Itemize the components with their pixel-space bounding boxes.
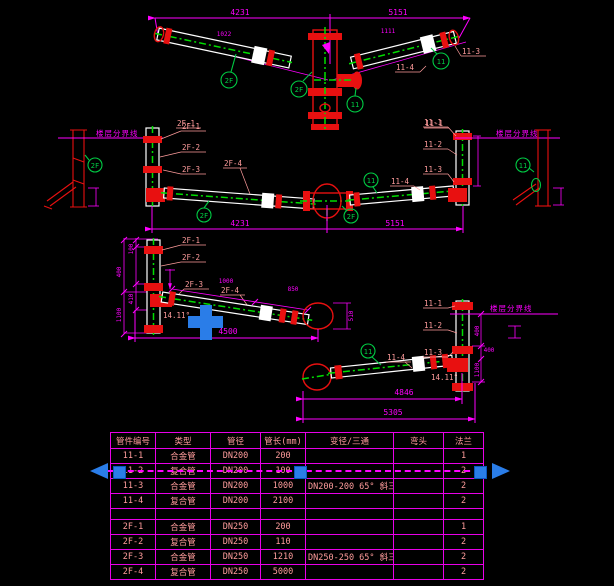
table-row: 2F-1 合金管 DN250 200 1 (111, 520, 484, 535)
table-cell: DN200 (211, 449, 261, 464)
table-cell: 2F-2 (111, 535, 156, 550)
table-row: 2F-2 复合管 DN250 110 2 (111, 535, 484, 550)
table-cell (306, 565, 394, 580)
balloon-junction-label: 2F (347, 213, 355, 221)
cad-canvas: 4231 5151 1022 1111 (0, 0, 614, 586)
part-label: 11-1 (424, 299, 442, 308)
drawing-canvas: 4231 5151 1022 1111 (0, 0, 614, 430)
detail-2f-view: 100 410 400 1100 2F-1 2F-2 2F-3 2F-4 100… (116, 236, 355, 342)
grip-handle-left[interactable] (113, 466, 126, 479)
dim-sub-left: 1022 (217, 31, 232, 38)
part-label: 11-3 (462, 47, 480, 56)
run-right (346, 183, 456, 207)
col-header-diameter: 管径 (211, 433, 261, 449)
table-cell (394, 535, 444, 550)
col-header-length: 管长(mm) (261, 433, 306, 449)
balloon-left-support-label: 2F (91, 162, 99, 170)
table-cell: DN200 (211, 479, 261, 494)
part-label: 2F-3 (182, 165, 200, 174)
balloon-right-support-label: 11 (519, 162, 527, 170)
dim-chain-label: 410 (128, 293, 135, 304)
center-column (308, 27, 362, 132)
dim-chain-label: 400 (484, 347, 495, 354)
table-cell (394, 550, 444, 565)
table-cell: 1210 (261, 550, 306, 565)
table-header-row: 管件编号 类型 管径 管长(mm) 变径/三通 弯头 法兰 (111, 433, 484, 449)
table-cell: 5000 (261, 565, 306, 580)
dim-chain-label: 1100 (116, 307, 123, 322)
table-row: 11-3 合金管 DN200 1000 DN200-200 65° 斜三通 2 (111, 479, 484, 494)
part-label: 2F-1 (182, 122, 200, 131)
dim-chain-label: 400 (474, 325, 481, 336)
left-riser (143, 126, 165, 206)
table-row: 2F-4 复合管 DN250 5000 2 (111, 565, 484, 580)
table-row: 2F-3 合金管 DN250 1210 DN250-250 65° 斜三通 2 (111, 550, 484, 565)
top-view-assembly: 4231 5151 1022 1111 (153, 8, 486, 132)
table-cell: DN250 (211, 520, 261, 535)
part-label: 11-3 (424, 165, 442, 174)
table-cell: 2 (444, 494, 484, 509)
table-cell (394, 509, 444, 520)
table-cell (306, 509, 394, 520)
table-cell: 2 (444, 550, 484, 565)
table-cell: 1000 (261, 479, 306, 494)
table-cell (306, 449, 394, 464)
table-cell: 11-3 (111, 479, 156, 494)
balloon-run-left-label: 2F (200, 212, 208, 220)
part-label: 11-4 (391, 177, 410, 186)
dim-elev-right: 5151 (385, 219, 404, 228)
arrow-left-icon[interactable] (90, 463, 108, 479)
dim-chain-label: 400 (116, 266, 123, 277)
col-header-part-id: 管件编号 (111, 433, 156, 449)
col-header-flange: 法兰 (444, 433, 484, 449)
table-cell: 2 (444, 565, 484, 580)
arrow-right-icon[interactable] (492, 463, 510, 479)
dim-seg2: 850 (288, 286, 299, 293)
table-cell (444, 509, 484, 520)
part-label: 11-2 (424, 321, 442, 330)
dim-top-right: 5151 (388, 8, 407, 17)
table-cell: 1 (444, 449, 484, 464)
floor-line-label: 楼层分界线 (496, 128, 539, 138)
run-left (160, 185, 316, 211)
part-label: 11-2 (424, 140, 442, 149)
balloon-11-label: 11 (364, 348, 372, 356)
part-label: 2F-4 (224, 159, 243, 168)
table-cell: 110 (261, 535, 306, 550)
table-cell (211, 509, 261, 520)
table-cell (111, 509, 156, 520)
table-cell: 2F-4 (111, 565, 156, 580)
part-label: 11-1 (424, 118, 442, 127)
balloon-tee-label: 11 (351, 101, 359, 109)
right-riser (448, 129, 472, 206)
table-cell: 2 (444, 535, 484, 550)
dim-chain-label: 1100 (474, 362, 481, 377)
table-cell: 11-1 (111, 449, 156, 464)
part-label: 11-4 (396, 63, 415, 72)
table-cell: 2F-3 (111, 550, 156, 565)
dim-elev-left: 4231 (230, 219, 249, 228)
balloon-right-arm-label: 11 (437, 58, 445, 66)
part-label: 11-4 (387, 353, 406, 362)
floor-line-label: 楼层分界线 (96, 128, 139, 138)
table-cell: 200 (261, 520, 306, 535)
dim-total-2f: 4500 (218, 327, 237, 336)
junction-tee (300, 184, 356, 233)
table-cell: 11-4 (111, 494, 156, 509)
table-cell (306, 520, 394, 535)
balloon-column-label: 2F (295, 86, 303, 94)
table-cell (394, 520, 444, 535)
table-cell (394, 565, 444, 580)
dim-top-left: 4231 (230, 8, 249, 17)
table-cell: 合金管 (156, 520, 211, 535)
dim-end-label: 510 (348, 310, 355, 321)
table-cell (394, 494, 444, 509)
table-cell: 1 (444, 520, 484, 535)
angle-label: 14.11° (163, 311, 190, 320)
table-cell (394, 449, 444, 464)
table-cell: 复合管 (156, 535, 211, 550)
table-cell: 合金管 (156, 449, 211, 464)
dim-chain-label: 100 (128, 243, 135, 254)
table-cell: DN250-250 65° 斜三通 (306, 550, 394, 565)
table-cell (306, 494, 394, 509)
table-cell: DN250 (211, 565, 261, 580)
leader-arrowhead-icon (322, 42, 330, 54)
dim-sub-right: 1111 (381, 28, 396, 35)
detail-11-view: 楼层分界线 11-1 11-2 11-3 11-4 11 14.11° 400 … (302, 299, 558, 423)
table-cell (156, 509, 211, 520)
table-cell: 合金管 (156, 550, 211, 565)
col-header-type: 类型 (156, 433, 211, 449)
table-cell: 复合管 (156, 494, 211, 509)
table-cell: 2 (444, 479, 484, 494)
table-cell: 合金管 (156, 479, 211, 494)
floor-line-label: 楼层分界线 (490, 303, 533, 313)
part-label: 2F-3 (185, 280, 203, 289)
col-header-elbow: 弯头 (394, 433, 444, 449)
grip-handle-right[interactable] (474, 466, 487, 479)
dim-seg1: 1000 (219, 278, 234, 285)
part-label: 11-3 (424, 348, 442, 357)
table-cell: 200 (261, 449, 306, 464)
table-cell: 2F-1 (111, 520, 156, 535)
col-header-reducer-tee: 变径/三通 (306, 433, 394, 449)
table-row: 11-1 合金管 DN200 200 1 (111, 449, 484, 464)
riser-2f (144, 238, 172, 335)
table-cell: 复合管 (156, 565, 211, 580)
table-spacer-row (111, 509, 484, 520)
table-cell (261, 509, 306, 520)
part-label: 2F-1 (182, 236, 200, 245)
grip-handle-middle[interactable] (294, 466, 307, 479)
angle-label: 14.11° (431, 373, 458, 382)
table-row: 11-4 复合管 DN200 2100 2 (111, 494, 484, 509)
table-cell: DN200 (211, 494, 261, 509)
part-label: 2F-2 (182, 143, 200, 152)
table-cell: DN200-200 65° 斜三通 (306, 479, 394, 494)
elevation-view: 楼层分界线 2F 2F-1 2F-2 2F-3 2F 2F-4 (44, 118, 564, 233)
table-cell: DN250 (211, 550, 261, 565)
table-cell: DN250 (211, 535, 261, 550)
part-label: 2F-4 (221, 286, 240, 295)
balloon-run-right-label: 11 (367, 177, 375, 185)
dim-total-11: 5305 (383, 408, 402, 417)
table-cell: 2100 (261, 494, 306, 509)
part-label: 2F-2 (182, 253, 200, 262)
table-cell (394, 479, 444, 494)
parts-table: 管件编号 类型 管径 管长(mm) 变径/三通 弯头 法兰 11-1 合金管 D… (110, 432, 484, 580)
balloon-left-arm-label: 2F (225, 77, 233, 85)
table-cell (306, 535, 394, 550)
dim-run-11: 4846 (394, 388, 413, 397)
